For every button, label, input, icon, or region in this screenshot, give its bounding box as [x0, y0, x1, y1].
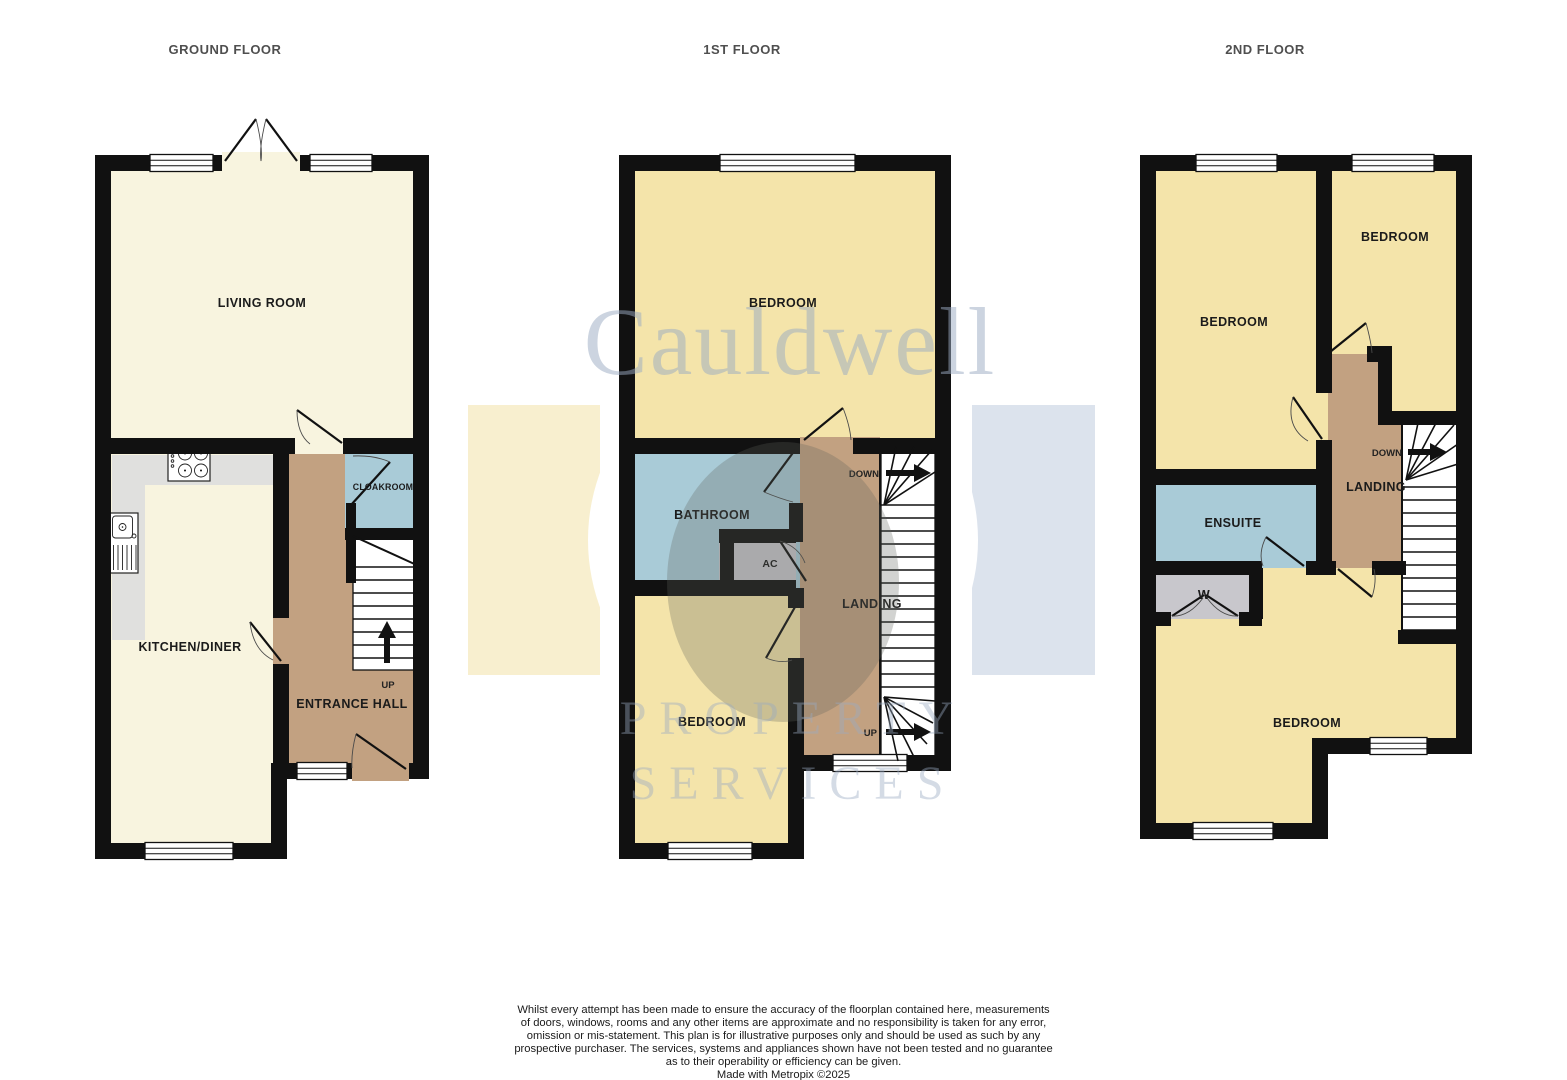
window [833, 755, 907, 772]
disclaimer: Whilst every attempt has been made to en… [0, 1004, 1567, 1080]
label-landing-first: LANDING [842, 597, 902, 611]
label-bedroom-top: BEDROOM [749, 296, 817, 310]
window [1196, 155, 1277, 172]
window [1370, 738, 1427, 755]
window [150, 155, 213, 172]
label-ac: AC [762, 558, 778, 570]
metropix-credit: Made with Metropix ©2025 [0, 1069, 1567, 1080]
disclaimer-line: as to their operability or efficiency ca… [0, 1056, 1567, 1069]
disclaimer-line: omission or mis-statement. This plan is … [0, 1030, 1567, 1043]
label-living-room: LIVING ROOM [218, 296, 306, 310]
label-down: DOWN [1372, 448, 1402, 459]
floorplan-page: LIVING ROOM KITCHEN/DINER CLOAKROOM ENTR… [0, 0, 1567, 1080]
window [668, 843, 752, 860]
window [1352, 155, 1434, 172]
title-ground-floor: GROUND FLOOR [75, 42, 375, 57]
title-second-floor: 2ND FLOOR [1115, 42, 1415, 57]
label-landing-second: LANDING [1346, 480, 1406, 494]
label-kitchen-diner: KITCHEN/DINER [138, 640, 241, 654]
second-floor-plan: BEDROOM BEDROOM ENSUITE W LANDING BEDROO… [1148, 155, 1470, 840]
label-bedroom-right: BEDROOM [1361, 230, 1429, 244]
floorplans: LIVING ROOM KITCHEN/DINER CLOAKROOM ENTR… [0, 0, 1567, 1080]
label-down: DOWN [849, 469, 879, 480]
living-room-door-opening [295, 438, 343, 454]
window [1193, 823, 1273, 840]
label-entrance-hall: ENTRANCE HALL [296, 697, 407, 711]
bedroom-door-opening [800, 438, 853, 454]
kitchen-door-opening [273, 618, 289, 664]
window [297, 763, 347, 780]
disclaimer-line: prospective purchaser. The services, sys… [0, 1043, 1567, 1056]
disclaimer-line: Whilst every attempt has been made to en… [0, 1004, 1567, 1017]
sink-icon [110, 513, 138, 573]
window [145, 843, 233, 860]
label-bedroom-bottom: BEDROOM [678, 715, 746, 729]
label-bathroom: BATHROOM [674, 508, 750, 522]
label-cloakroom: CLOAKROOM [353, 482, 413, 492]
label-bedroom-left: BEDROOM [1200, 315, 1268, 329]
ground-floor-plan: LIVING ROOM KITCHEN/DINER CLOAKROOM ENTR… [103, 119, 421, 860]
label-wardrobe: W [1198, 588, 1210, 602]
first-floor-plan: BEDROOM BATHROOM AC LANDING BEDROOM DOWN… [627, 155, 943, 860]
disclaimer-line: of doors, windows, rooms and any other i… [0, 1017, 1567, 1030]
label-up: UP [381, 680, 395, 691]
window [720, 155, 855, 172]
label-up: UP [864, 728, 878, 739]
label-ensuite: ENSUITE [1205, 516, 1262, 530]
title-first-floor: 1ST FLOOR [592, 42, 892, 57]
window [310, 155, 372, 172]
label-bedroom-bottom: BEDROOM [1273, 716, 1341, 730]
